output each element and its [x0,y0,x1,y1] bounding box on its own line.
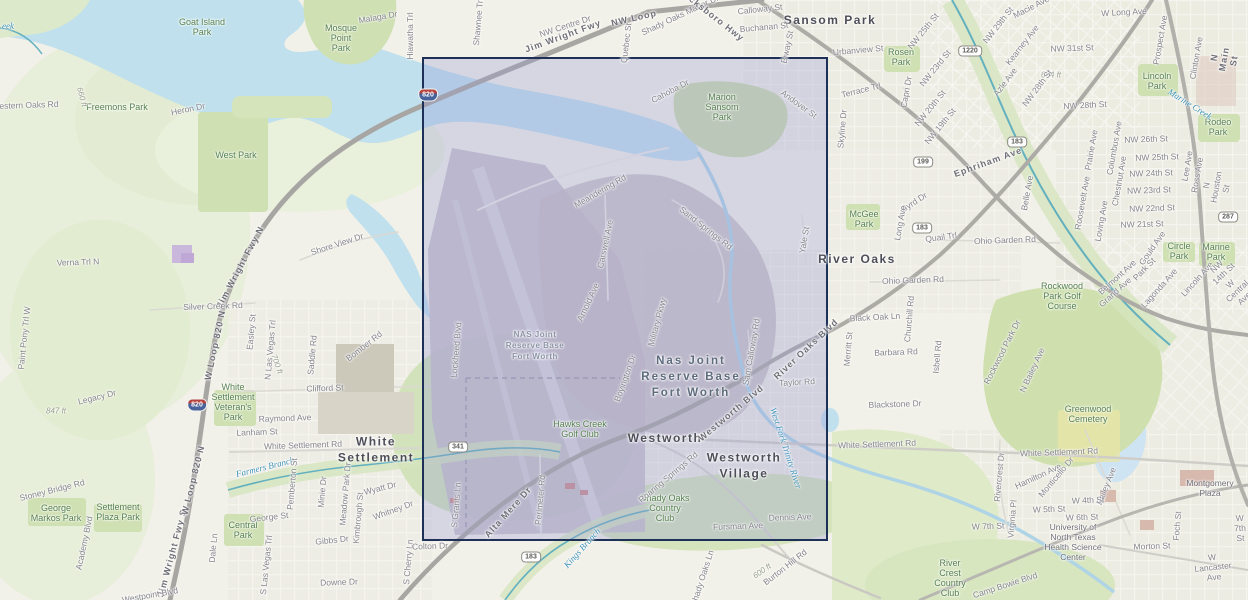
selection-rectangle[interactable] [422,57,828,541]
map-canvas[interactable]: Sansom ParkRiver OaksWhite SettlementWes… [0,0,1248,600]
